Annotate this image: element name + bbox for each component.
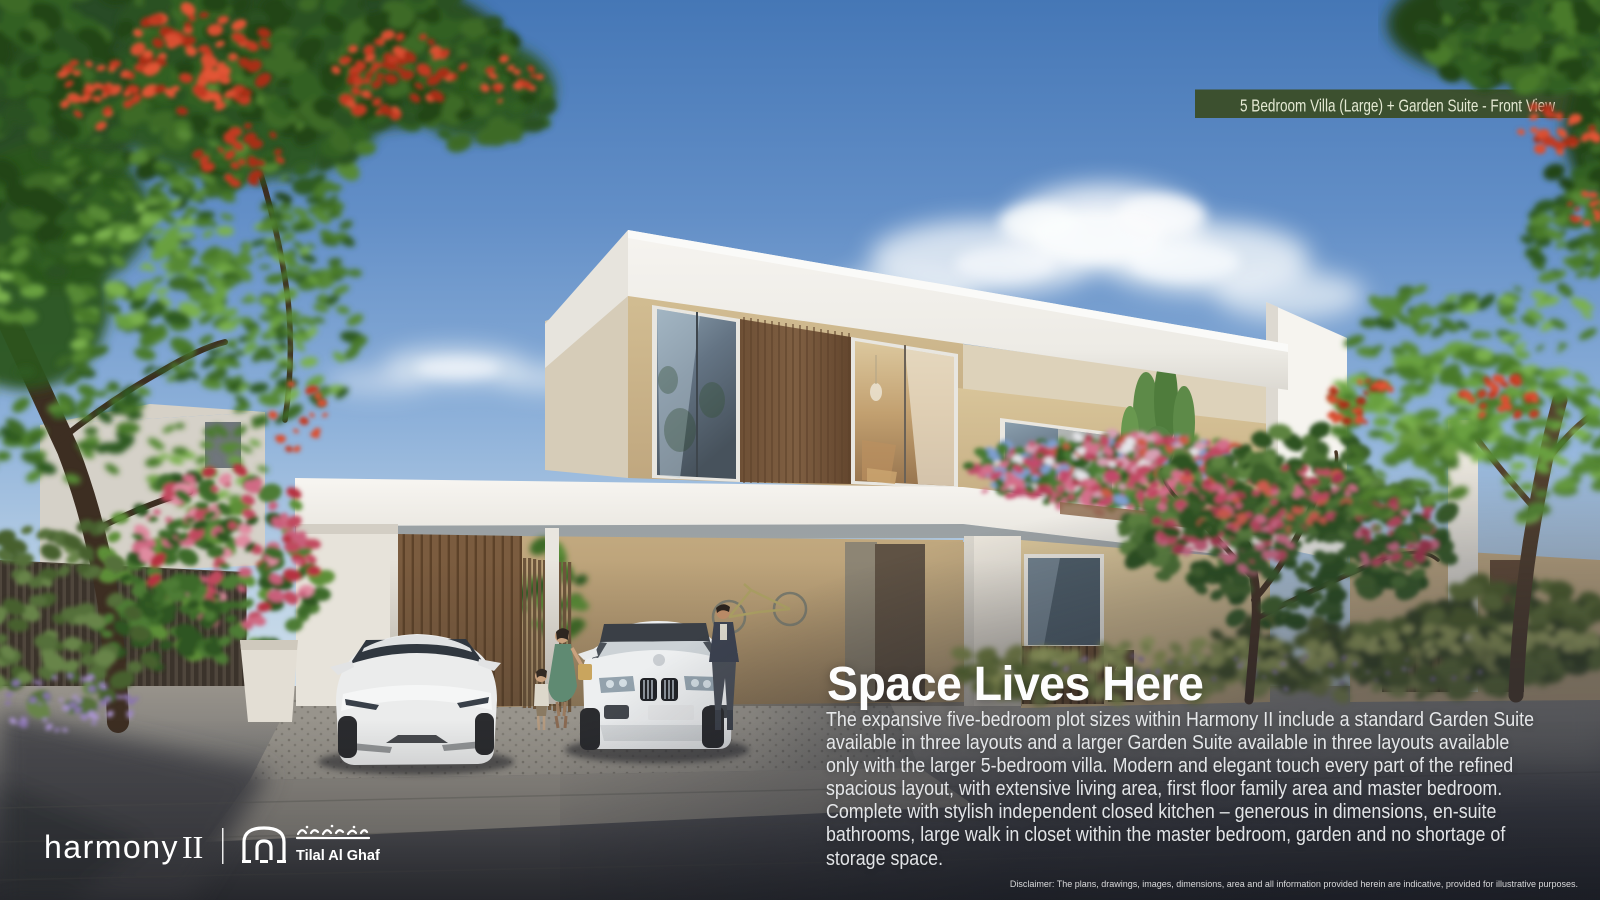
svg-text:5 Bedroom Villa (Large) + Gard: 5 Bedroom Villa (Large) + Garden Suite -… — [1240, 96, 1555, 116]
